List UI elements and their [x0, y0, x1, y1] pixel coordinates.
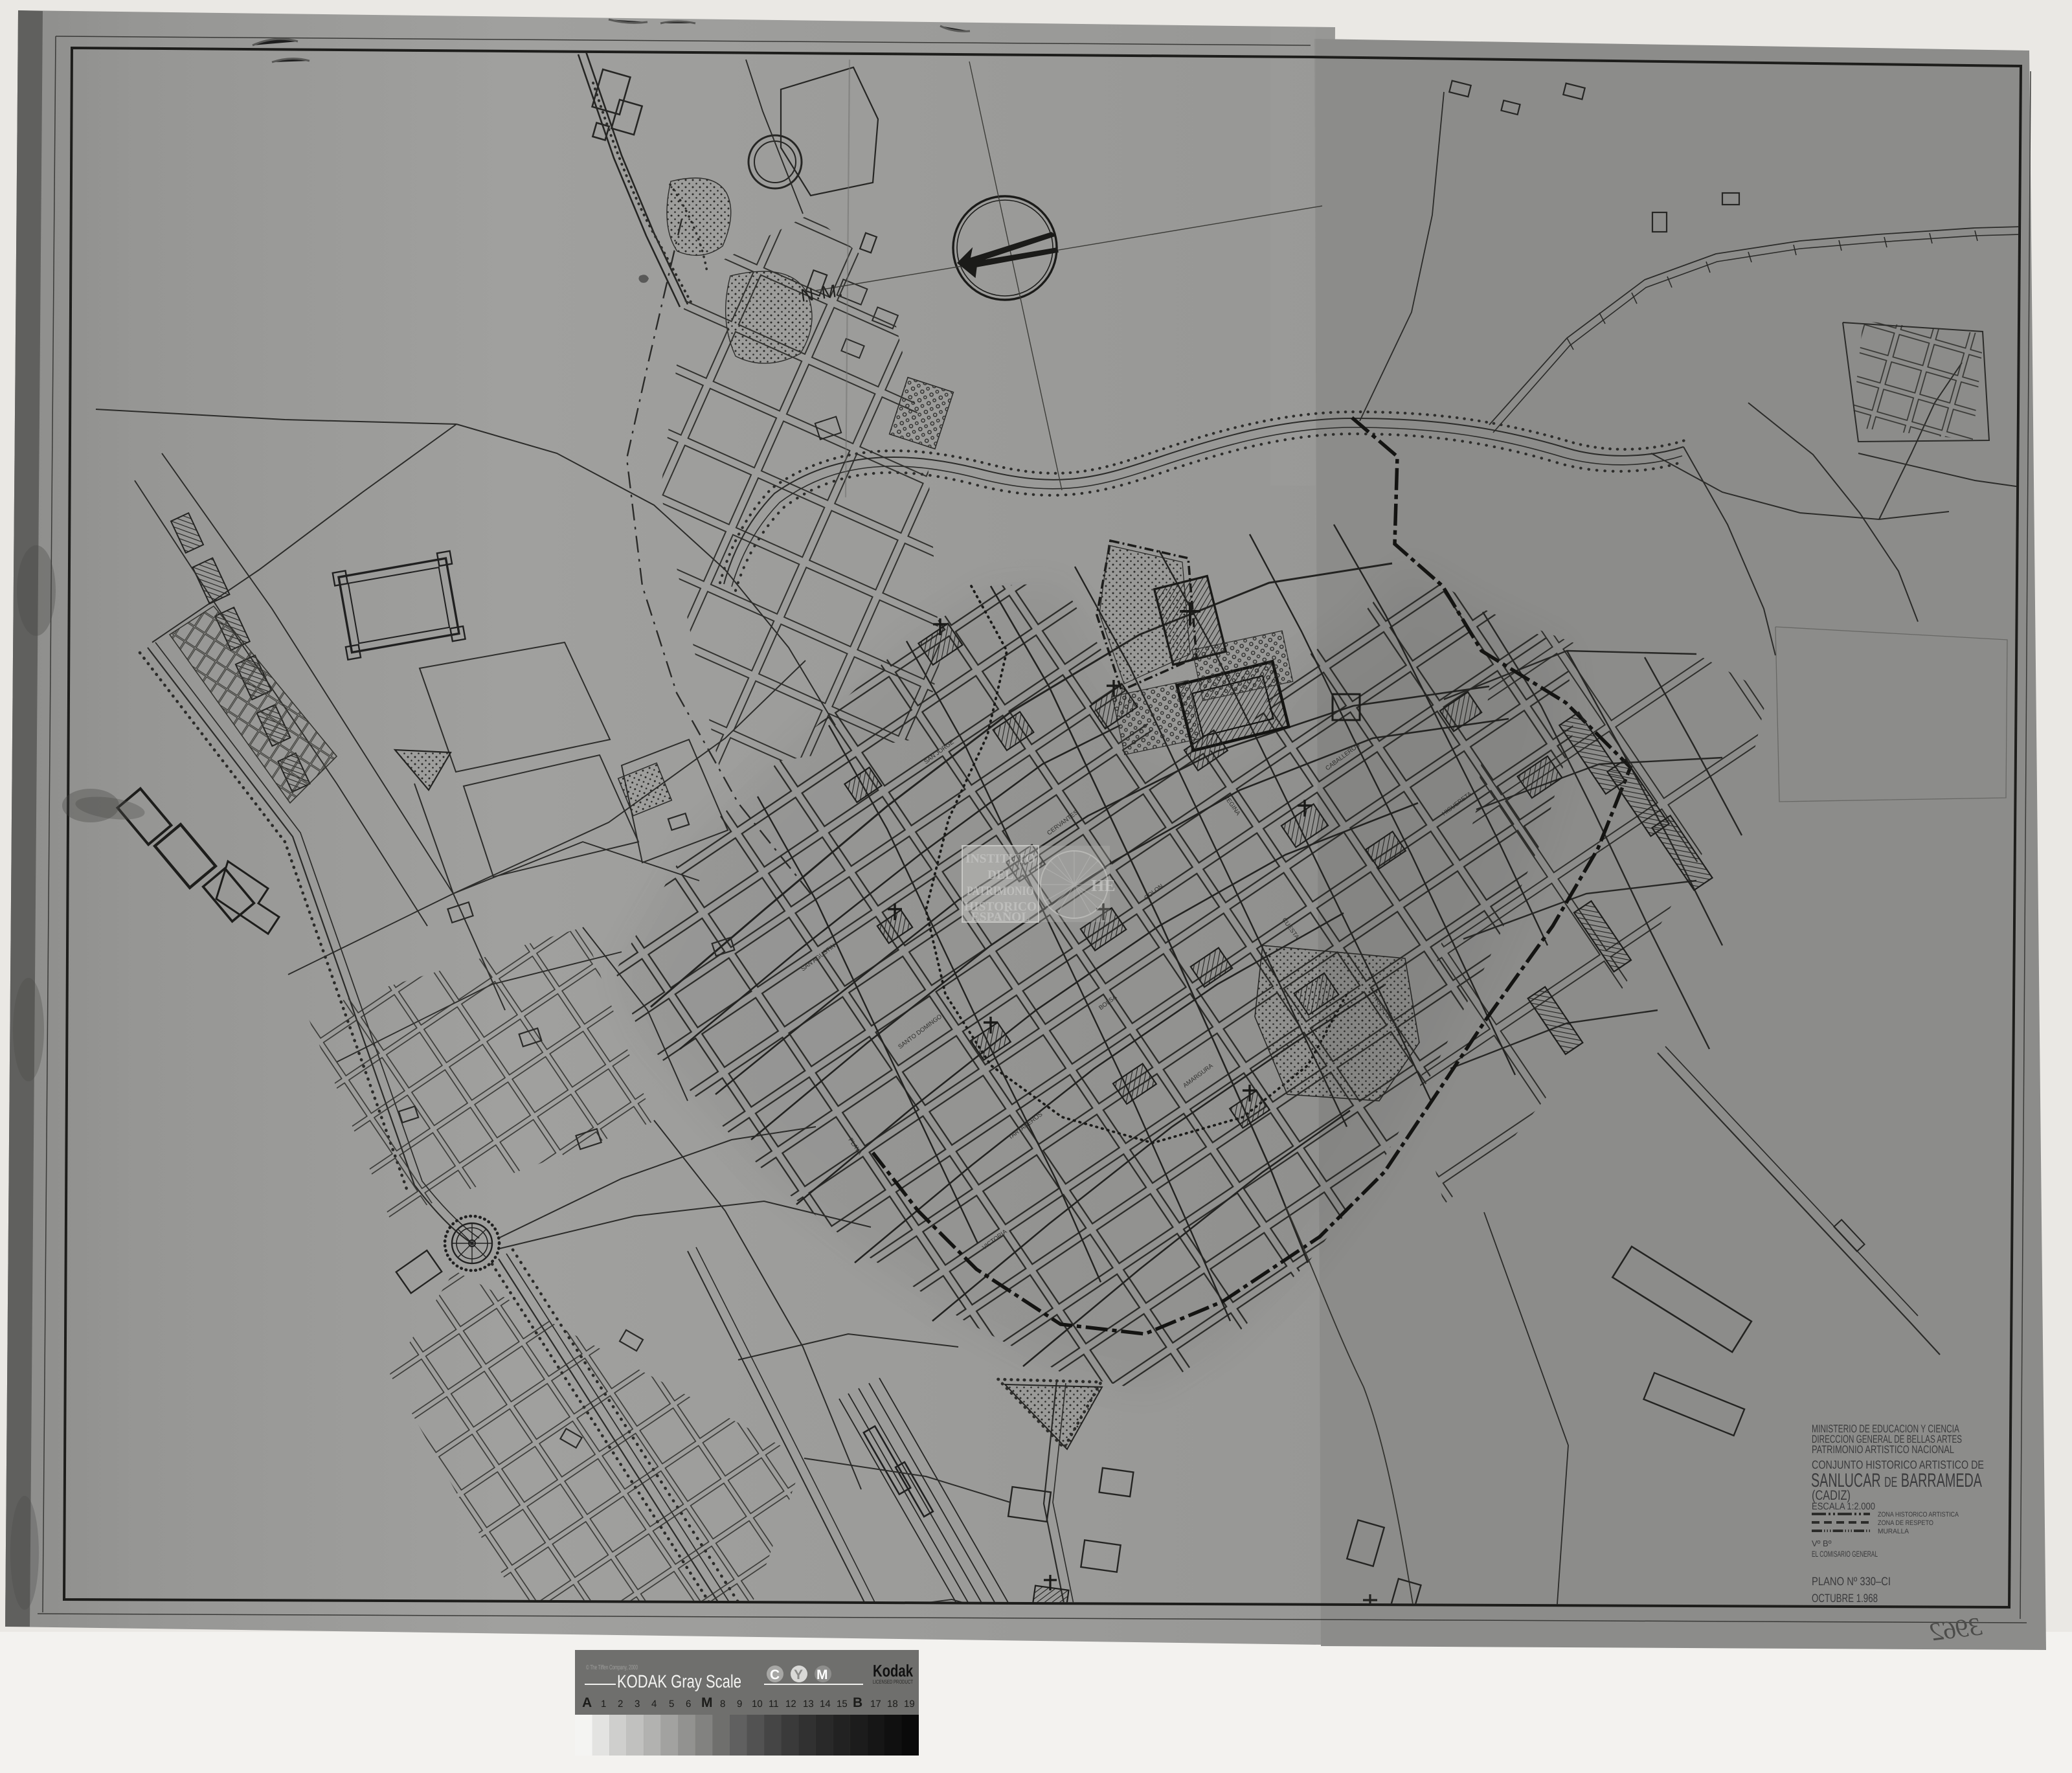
svg-text:EL COMISARIO GENERAL: EL COMISARIO GENERAL [1812, 1550, 1878, 1559]
svg-text:12: 12 [785, 1699, 796, 1710]
svg-text:LICENSED PRODUCT: LICENSED PRODUCT [873, 1678, 913, 1685]
svg-text:14: 14 [820, 1699, 831, 1710]
svg-text:KODAK Gray Scale: KODAK Gray Scale [617, 1671, 741, 1691]
svg-text:PLANO Nº 330–CI: PLANO Nº 330–CI [1812, 1575, 1891, 1588]
svg-text:DEL: DEL [987, 868, 1013, 882]
svg-text:4: 4 [651, 1699, 657, 1710]
svg-text:MURALLA: MURALLA [1878, 1528, 1909, 1535]
svg-text:15: 15 [837, 1699, 848, 1710]
svg-text:PATRIMONIO ARTISTICO NACIONAL: PATRIMONIO ARTISTICO NACIONAL [1812, 1443, 1954, 1456]
svg-text:19: 19 [904, 1699, 915, 1710]
svg-text:8: 8 [720, 1699, 725, 1710]
svg-text:ESPAÑOL: ESPAÑOL [971, 910, 1030, 924]
svg-text:Kodak: Kodak [873, 1661, 913, 1680]
svg-text:HE: HE [1091, 876, 1116, 895]
svg-text:ZONA HISTORICO ARTISTICA: ZONA HISTORICO ARTISTICA [1878, 1511, 1959, 1519]
svg-text:11: 11 [769, 1699, 779, 1710]
svg-text:ZONA DE RESPETO: ZONA DE RESPETO [1878, 1519, 1933, 1527]
svg-text:6: 6 [686, 1699, 691, 1710]
svg-text:PATRIMONIO: PATRIMONIO [967, 885, 1034, 898]
svg-text:CONJUNTO HISTORICO ARTISTICO D: CONJUNTO HISTORICO ARTISTICO DE [1812, 1458, 1984, 1471]
svg-text:3: 3 [635, 1699, 640, 1710]
svg-text:5: 5 [669, 1699, 674, 1710]
svg-text:C: C [770, 1667, 780, 1682]
svg-text:2: 2 [618, 1699, 623, 1710]
svg-text:18: 18 [887, 1699, 898, 1710]
svg-text:B: B [853, 1695, 862, 1710]
svg-text:ESCALA 1:2.000: ESCALA 1:2.000 [1812, 1501, 1875, 1512]
svg-text:M: M [701, 1695, 713, 1710]
svg-text:Y: Y [794, 1667, 803, 1682]
svg-text:Vº Bº: Vº Bº [1812, 1539, 1832, 1548]
svg-text:OCTUBRE 1.968: OCTUBRE 1.968 [1812, 1592, 1878, 1605]
svg-text:A: A [582, 1695, 592, 1710]
svg-text:M: M [816, 1667, 828, 1682]
svg-text:INSTITUTO: INSTITUTO [965, 852, 1035, 866]
svg-text:1: 1 [601, 1699, 606, 1710]
svg-text:9: 9 [737, 1699, 742, 1710]
svg-text:17: 17 [870, 1699, 881, 1710]
svg-text:13: 13 [803, 1699, 814, 1710]
svg-text:© The Tiffen Company, 2000: © The Tiffen Company, 2000 [586, 1664, 638, 1671]
svg-text:10: 10 [752, 1699, 763, 1710]
